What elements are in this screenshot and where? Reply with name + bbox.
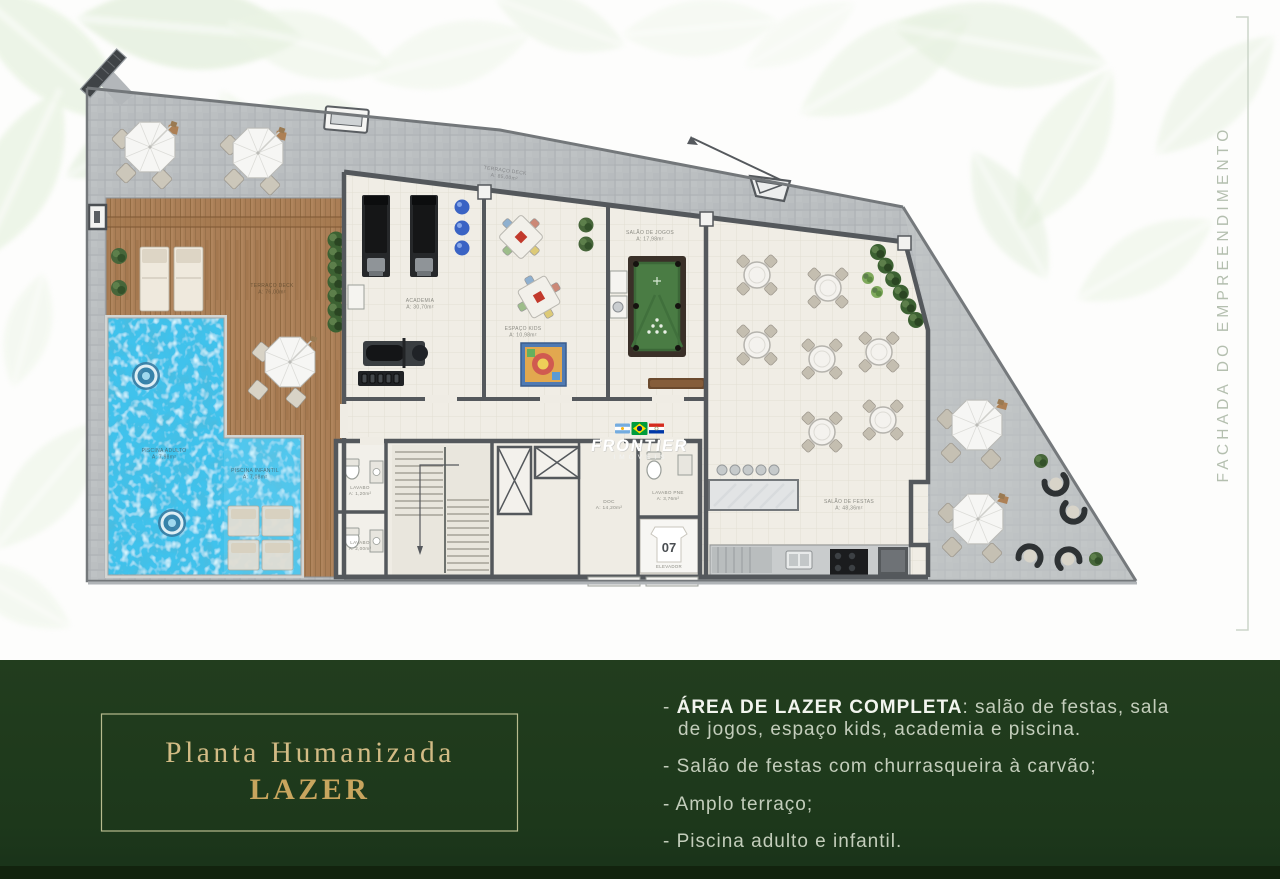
- svg-text:FRONTIER: FRONTIER: [590, 436, 690, 455]
- svg-text:ESPAÇO KIDSA: 10,98m²: ESPAÇO KIDSA: 10,98m²: [505, 326, 542, 338]
- svg-text:LAVABOA: 1,20m²: LAVABOA: 1,20m²: [349, 485, 372, 496]
- svg-text:Planta Humanizada: Planta Humanizada: [165, 737, 455, 769]
- svg-text:- Amplo terraço;: - Amplo terraço;: [663, 794, 813, 815]
- svg-text:IMÓVEIS: IMÓVEIS: [613, 452, 668, 461]
- svg-text:LAVABOA: 2,00m²: LAVABOA: 2,00m²: [349, 540, 372, 551]
- svg-text:- Salão de festas com churrasq: - Salão de festas com churrasqueira à ca…: [663, 756, 1097, 777]
- svg-text:ACADEMIAA: 30,70m²: ACADEMIAA: 30,70m²: [406, 298, 435, 310]
- svg-text:de jogos, espaço kids, academi: de jogos, espaço kids, academia e piscin…: [678, 719, 1081, 740]
- svg-text:LAZER: LAZER: [250, 773, 371, 806]
- svg-text:LAVABO PNEA: 3,76m²: LAVABO PNEA: 3,76m²: [652, 490, 683, 501]
- svg-text:- ÁREA DE LAZER COMPLETA: salã: - ÁREA DE LAZER COMPLETA: salão de festa…: [663, 696, 1169, 718]
- svg-text:07: 07: [662, 540, 676, 555]
- svg-text:FACHADA DO EMPREENDIMENTO: FACHADA DO EMPREENDIMENTO: [1215, 125, 1232, 482]
- svg-text:ELEVADOR: ELEVADOR: [656, 564, 682, 569]
- svg-text:- Piscina adulto e infantil.: - Piscina adulto e infantil.: [663, 831, 902, 852]
